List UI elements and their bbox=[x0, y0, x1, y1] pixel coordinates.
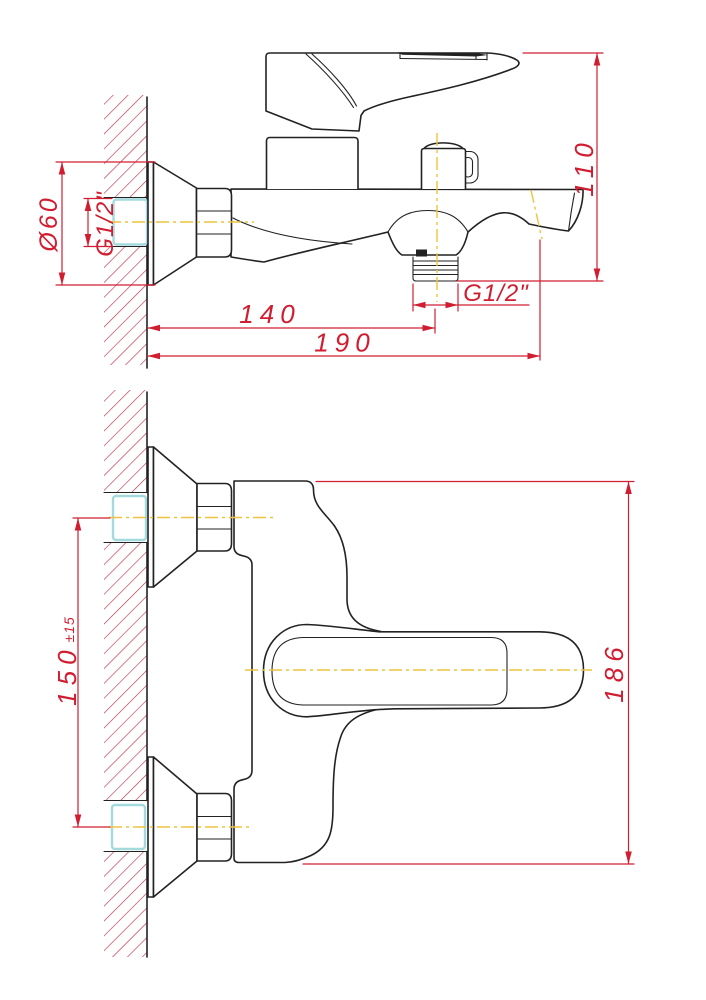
diverter-dome bbox=[424, 143, 463, 149]
dim-label-outlet-offset: 140 bbox=[239, 299, 300, 329]
dim-label-total-reach: 190 bbox=[314, 328, 375, 358]
hex-nut-side bbox=[197, 189, 232, 258]
thread-undercut bbox=[416, 250, 427, 257]
dim-label-escutcheon-diameter: Ø60 bbox=[35, 195, 63, 252]
dim-label-inlet-thread: G1/2" bbox=[92, 191, 119, 257]
technical-drawing-page: Ø60 G1/2" 110 G1/2" 140 190 bbox=[0, 0, 706, 1000]
lever-handle-side bbox=[266, 52, 519, 131]
dim-label-height: 110 bbox=[569, 137, 599, 196]
body-spout-outline bbox=[231, 189, 583, 262]
inlet-spacing-value: 150 bbox=[52, 644, 82, 705]
wall-hatch bbox=[104, 390, 147, 957]
side-view: Ø60 G1/2" 110 G1/2" 140 190 bbox=[35, 52, 603, 368]
faucet-body-side bbox=[148, 52, 583, 285]
dim-label-overall-width: 186 bbox=[599, 641, 629, 702]
faucet-body-front bbox=[148, 447, 584, 897]
wall-section-front bbox=[104, 390, 151, 957]
diverter-knob bbox=[422, 143, 479, 189]
valve-body-side bbox=[267, 138, 359, 190]
dim-label-outlet-thread: G1/2" bbox=[463, 280, 529, 307]
faucet-dimension-drawing: Ø60 G1/2" 110 G1/2" 140 190 bbox=[0, 0, 706, 1000]
inlet-spacing-tolerance: ±15 bbox=[61, 616, 77, 642]
front-view: 150±15 186 bbox=[52, 390, 634, 957]
escutcheon-side bbox=[148, 162, 197, 285]
